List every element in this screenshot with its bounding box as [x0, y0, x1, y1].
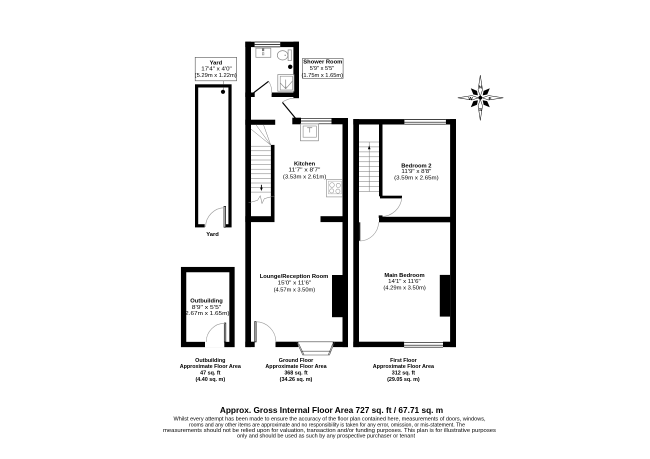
svg-text:Ground Floor: Ground Floor — [279, 358, 314, 364]
svg-text:only and should be used as suc: only and should be used as such by any p… — [237, 434, 415, 440]
svg-text:First Floor: First Floor — [390, 358, 418, 364]
svg-text:Lounge/Reception Room: Lounge/Reception Room — [260, 274, 329, 280]
svg-text:(34.26 sq. m): (34.26 sq. m) — [280, 377, 313, 383]
svg-text:(2.67m x 1.65m): (2.67m x 1.65m) — [183, 311, 230, 317]
svg-text:(29.05 sq. m): (29.05 sq. m) — [387, 377, 420, 383]
svg-text:(4.29m x 3.50m): (4.29m x 3.50m) — [383, 286, 426, 292]
svg-text:Approximate Floor Area: Approximate Floor Area — [180, 364, 242, 370]
svg-text:(3.59m x 2.65m): (3.59m x 2.65m) — [394, 176, 439, 182]
svg-text:Outbuilding: Outbuilding — [190, 298, 223, 304]
svg-text:Approximate Floor Area: Approximate Floor Area — [373, 364, 435, 370]
svg-text:Approximate Floor Area: Approximate Floor Area — [265, 364, 327, 370]
svg-text:(1.75m x 1.65m): (1.75m x 1.65m) — [302, 73, 344, 79]
svg-text:15'0" x 11'6": 15'0" x 11'6" — [278, 281, 312, 287]
svg-text:S: S — [479, 107, 482, 112]
svg-text:5'9" x 5'5": 5'9" x 5'5" — [310, 66, 335, 72]
svg-text:Kitchen: Kitchen — [294, 161, 316, 167]
svg-text:368 sq. ft: 368 sq. ft — [284, 371, 308, 377]
svg-text:(4.57m x 3.50m): (4.57m x 3.50m) — [274, 287, 316, 293]
svg-text:14'1" x 11'6": 14'1" x 11'6" — [388, 279, 421, 285]
svg-text:11'7" x 8'7": 11'7" x 8'7" — [288, 168, 320, 174]
svg-text:Outbuilding: Outbuilding — [195, 358, 225, 364]
svg-text:Approx. Gross Internal Floor A: Approx. Gross Internal Floor Area 727 sq… — [220, 405, 443, 415]
svg-text:E: E — [489, 96, 492, 101]
svg-text:Shower Room: Shower Room — [303, 60, 342, 66]
svg-text:W: W — [468, 96, 473, 101]
svg-text:312 sq. ft: 312 sq. ft — [392, 371, 416, 377]
svg-text:17'4" x 4'0": 17'4" x 4'0" — [201, 66, 232, 72]
svg-text:(3.53m x 2.61m): (3.53m x 2.61m) — [283, 174, 327, 180]
svg-text:11'9" x 8'8": 11'9" x 8'8" — [401, 169, 431, 175]
svg-text:(4.40 sq. m): (4.40 sq. m) — [195, 377, 225, 383]
svg-text:(5.29m x 1.22m): (5.29m x 1.22m) — [195, 73, 237, 79]
svg-text:47 sq. ft: 47 sq. ft — [200, 371, 221, 377]
svg-text:Yard: Yard — [206, 232, 219, 238]
